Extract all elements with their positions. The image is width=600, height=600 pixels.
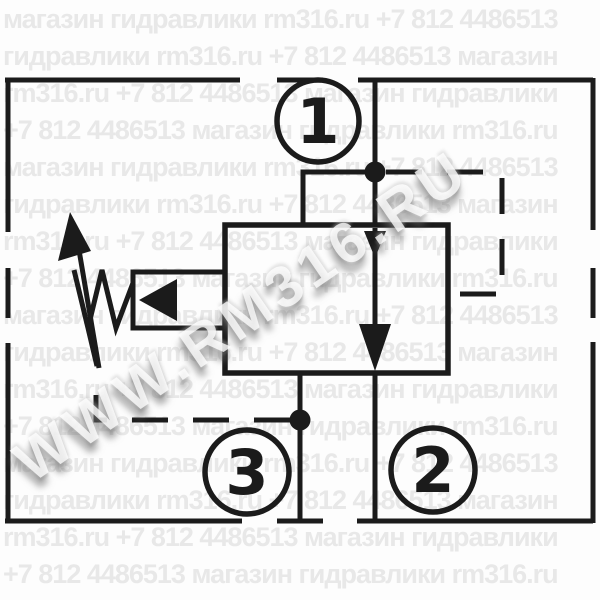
port2-balloon: 2 [391, 428, 475, 512]
pilot-triangle-icon [139, 279, 177, 321]
junction-dot-bottom [290, 410, 311, 431]
junction-dot-top [365, 162, 386, 183]
valve-schematic-svg: 1 2 3 [0, 0, 600, 600]
port2-label: 2 [411, 434, 454, 507]
branch-line [303, 172, 375, 225]
port1-label: 1 [296, 85, 339, 158]
pilot-line-right [386, 172, 502, 294]
adjust-arrow-head-icon [58, 212, 91, 261]
hydraulic-schematic-page: магазин гидравлики rm316.ru +7 812 44865… [0, 0, 600, 600]
pilot-line-left [96, 371, 290, 420]
flow-arrow-small-icon [364, 231, 386, 258]
port3-balloon: 3 [205, 430, 289, 514]
flow-arrow-large-icon [359, 324, 391, 371]
port3-label: 3 [225, 436, 268, 509]
main-valve-body [225, 225, 448, 373]
port1-balloon: 1 [277, 80, 359, 162]
